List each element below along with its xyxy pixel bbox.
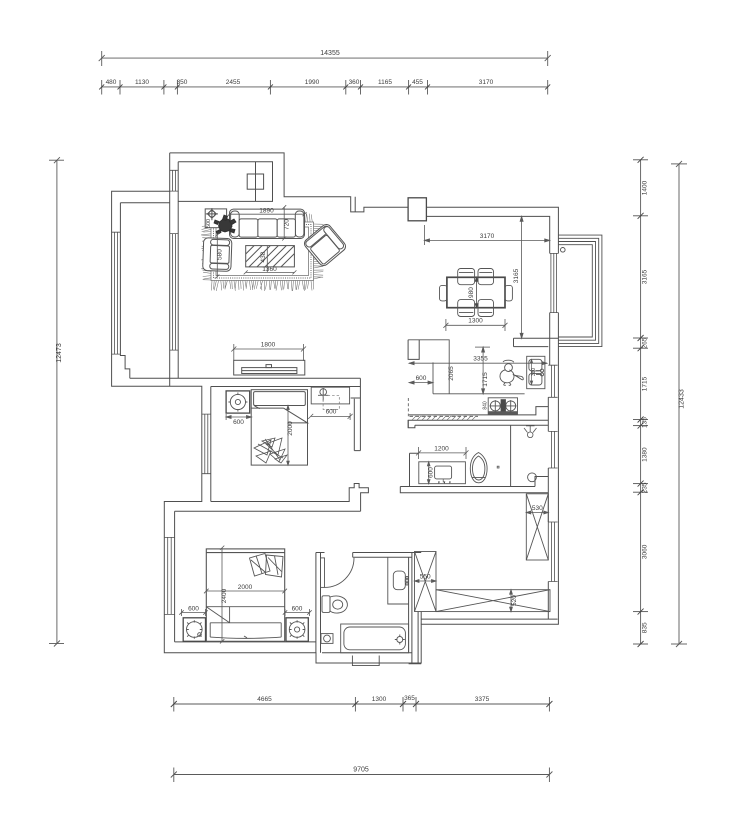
svg-text:380: 380 bbox=[531, 368, 537, 377]
svg-text:1165: 1165 bbox=[378, 79, 392, 86]
svg-text:720: 720 bbox=[283, 219, 290, 230]
svg-text:1715: 1715 bbox=[482, 372, 489, 387]
svg-text:2455: 2455 bbox=[226, 79, 241, 86]
svg-text:580: 580 bbox=[217, 249, 224, 260]
svg-text:3355: 3355 bbox=[473, 356, 488, 363]
svg-text:12473: 12473 bbox=[56, 343, 63, 363]
svg-text:1200: 1200 bbox=[434, 446, 449, 453]
svg-text:1130: 1130 bbox=[135, 79, 149, 86]
svg-text:3170: 3170 bbox=[479, 79, 494, 86]
svg-text:360: 360 bbox=[349, 79, 360, 86]
svg-text:600: 600 bbox=[427, 467, 434, 478]
svg-text:4665: 4665 bbox=[257, 696, 272, 703]
svg-text:600: 600 bbox=[292, 606, 303, 613]
svg-text:550: 550 bbox=[420, 574, 431, 581]
svg-text:14355: 14355 bbox=[320, 50, 340, 57]
svg-text:1890: 1890 bbox=[259, 208, 274, 215]
svg-text:12433: 12433 bbox=[679, 389, 686, 409]
svg-text:265: 265 bbox=[642, 337, 649, 348]
svg-text:438: 438 bbox=[260, 251, 267, 262]
svg-text:600: 600 bbox=[233, 419, 244, 426]
svg-text:135: 135 bbox=[642, 417, 649, 428]
svg-text:1800: 1800 bbox=[261, 342, 276, 349]
svg-text:350: 350 bbox=[177, 79, 188, 86]
svg-text:1715: 1715 bbox=[642, 376, 649, 391]
svg-text:600: 600 bbox=[326, 409, 337, 416]
svg-text:3060: 3060 bbox=[642, 544, 649, 559]
svg-text:2000: 2000 bbox=[287, 421, 294, 436]
svg-text:480: 480 bbox=[106, 79, 117, 86]
svg-text:1360: 1360 bbox=[262, 266, 277, 273]
svg-text:3165: 3165 bbox=[513, 268, 520, 283]
svg-text:235: 235 bbox=[642, 482, 649, 493]
svg-text:2065: 2065 bbox=[448, 366, 455, 381]
svg-text:500: 500 bbox=[206, 219, 212, 228]
svg-text:530: 530 bbox=[532, 505, 543, 512]
svg-text:365: 365 bbox=[404, 695, 415, 702]
svg-text:1300: 1300 bbox=[372, 696, 387, 703]
svg-text:2000: 2000 bbox=[238, 584, 253, 591]
svg-text:1380: 1380 bbox=[642, 447, 649, 462]
svg-text:2400: 2400 bbox=[221, 588, 228, 603]
svg-text:3375: 3375 bbox=[475, 696, 490, 703]
svg-text:835: 835 bbox=[642, 622, 649, 633]
svg-text:455: 455 bbox=[412, 79, 423, 86]
svg-text:840: 840 bbox=[482, 401, 488, 410]
svg-text:520: 520 bbox=[511, 595, 518, 606]
svg-text:600: 600 bbox=[188, 606, 199, 613]
svg-text:1400: 1400 bbox=[642, 180, 649, 195]
svg-text:9705: 9705 bbox=[353, 767, 369, 774]
svg-text:980: 980 bbox=[468, 287, 475, 298]
svg-text:1300: 1300 bbox=[468, 318, 483, 325]
svg-text:3170: 3170 bbox=[480, 233, 495, 240]
svg-text:1990: 1990 bbox=[305, 79, 320, 86]
svg-text:600: 600 bbox=[416, 375, 427, 382]
svg-text:3165: 3165 bbox=[642, 269, 649, 284]
